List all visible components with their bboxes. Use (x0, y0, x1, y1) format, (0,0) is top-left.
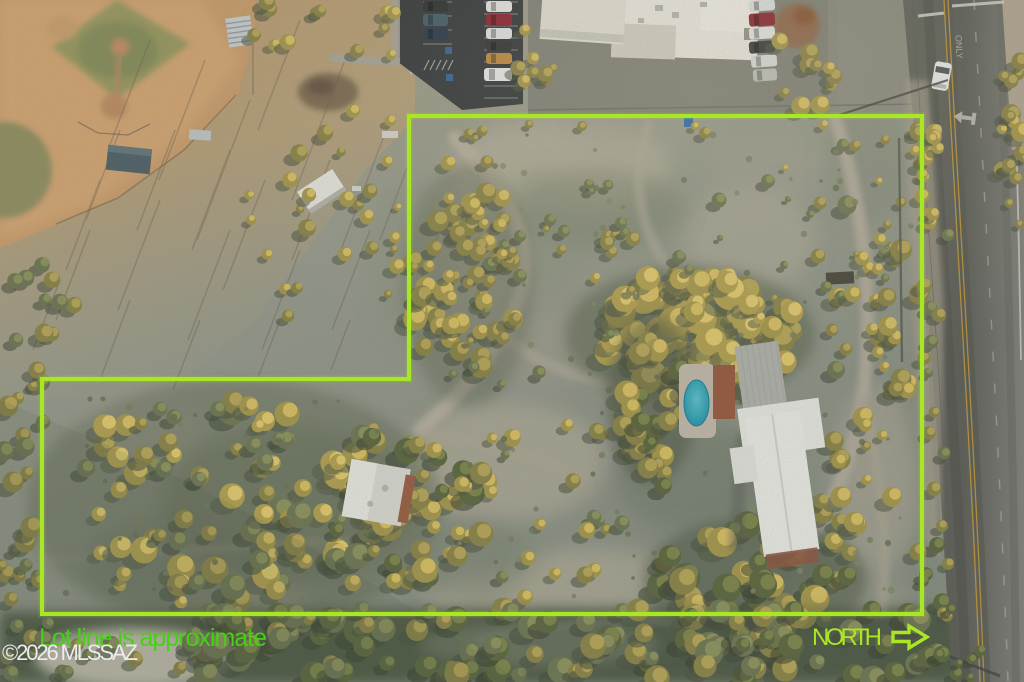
svg-text:©2026 MLSSAZ: ©2026 MLSSAZ (2, 640, 138, 665)
svg-text:NORTH: NORTH (812, 624, 882, 651)
